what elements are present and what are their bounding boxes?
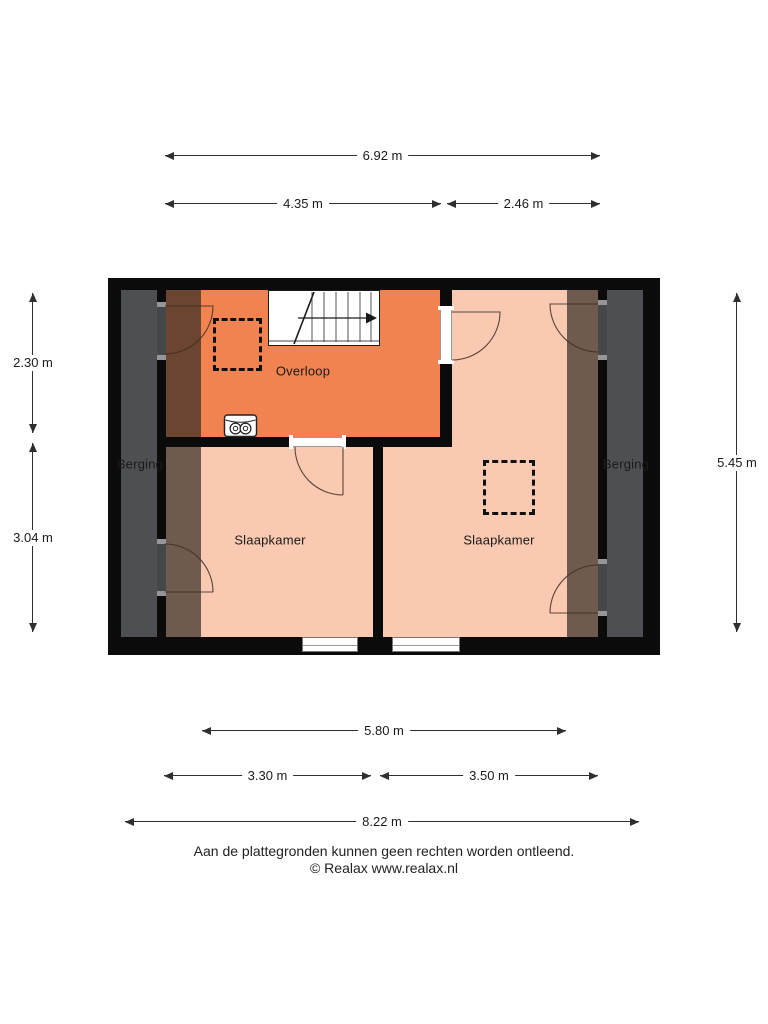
skylight-slaapkamer-right: [483, 460, 535, 515]
door-opening-berging-left-top: [157, 305, 166, 357]
dim-right-total-label: 5.45 m: [711, 455, 763, 471]
dim-top-right-label: 2.46 m: [498, 196, 550, 212]
slaapkamer-left-sloped-strip: [166, 447, 201, 637]
footer: Aan de plattegronden kunnen geen rechten…: [0, 843, 768, 877]
door-jamb: [598, 355, 607, 360]
stairs: [268, 290, 380, 346]
door-jamb: [157, 355, 166, 360]
footer-copyright: © Realax www.realax.nl: [0, 860, 768, 877]
dim-top-total-label: 6.92 m: [357, 148, 409, 164]
dim-bottom-left: 3.30 m: [164, 775, 371, 776]
dim-bottom-inner: 5.80 m: [202, 730, 566, 731]
slaapkamer-right-sloped-strip: [567, 290, 598, 637]
dim-left-lower-label: 3.04 m: [7, 530, 59, 546]
door-jamb: [438, 360, 454, 364]
door-jamb: [157, 302, 166, 307]
dim-top-total: 6.92 m: [165, 155, 600, 156]
door-opening-berging-left-bottom: [157, 542, 166, 593]
door-jamb: [598, 611, 607, 616]
skylight-overloop: [213, 318, 262, 371]
floorplan-page: 6.92 m 4.35 m 2.46 m 2.30 m 3.04 m 5.45 …: [0, 0, 768, 1024]
dim-top-left-label: 4.35 m: [277, 196, 329, 212]
door-opening-berging-right-bottom: [598, 562, 607, 613]
dim-top-left: 4.35 m: [165, 203, 441, 204]
dim-bottom-total: 8.22 m: [125, 821, 639, 822]
window-slaapkamer-right: [392, 637, 460, 652]
dim-left-upper-label: 2.30 m: [7, 355, 59, 371]
room-slaapkamer-right-floor-lower: [383, 447, 452, 637]
dim-top-right: 2.46 m: [447, 203, 600, 204]
dim-bottom-right: 3.50 m: [380, 775, 598, 776]
dim-left-lower: 3.04 m: [32, 443, 33, 632]
door-jamb: [289, 435, 293, 449]
floorplan: Overloop Slaapkamer Slaapkamer Berging B…: [108, 278, 660, 655]
door-jamb: [157, 539, 166, 544]
door-jamb: [342, 435, 346, 449]
door-overloop-slaapkamer-left: [292, 437, 343, 447]
door-jamb: [598, 559, 607, 564]
door-jamb: [598, 300, 607, 305]
door-opening-berging-right-top: [598, 303, 607, 357]
room-label-slaapkamer-right: Slaapkamer: [463, 533, 534, 548]
room-label-berging-left: Berging: [117, 457, 163, 472]
overloop-sloped-strip: [166, 290, 201, 437]
dim-bottom-total-label: 8.22 m: [356, 814, 408, 830]
dim-bottom-left-label: 3.30 m: [242, 768, 294, 784]
dim-bottom-inner-label: 5.80 m: [358, 723, 410, 739]
door-jamb: [157, 591, 166, 596]
door-jamb: [438, 306, 454, 310]
dim-right-total: 5.45 m: [736, 293, 737, 632]
footer-disclaimer: Aan de plattegronden kunnen geen rechten…: [0, 843, 768, 860]
room-label-slaapkamer-left: Slaapkamer: [234, 533, 305, 548]
dim-bottom-right-label: 3.50 m: [463, 768, 515, 784]
window-slaapkamer-left: [302, 637, 358, 652]
room-label-overloop: Overloop: [276, 364, 330, 379]
door-overloop-slaapkamer-right: [440, 309, 452, 361]
room-label-berging-right: Berging: [603, 457, 649, 472]
dim-left-upper: 2.30 m: [32, 293, 33, 433]
